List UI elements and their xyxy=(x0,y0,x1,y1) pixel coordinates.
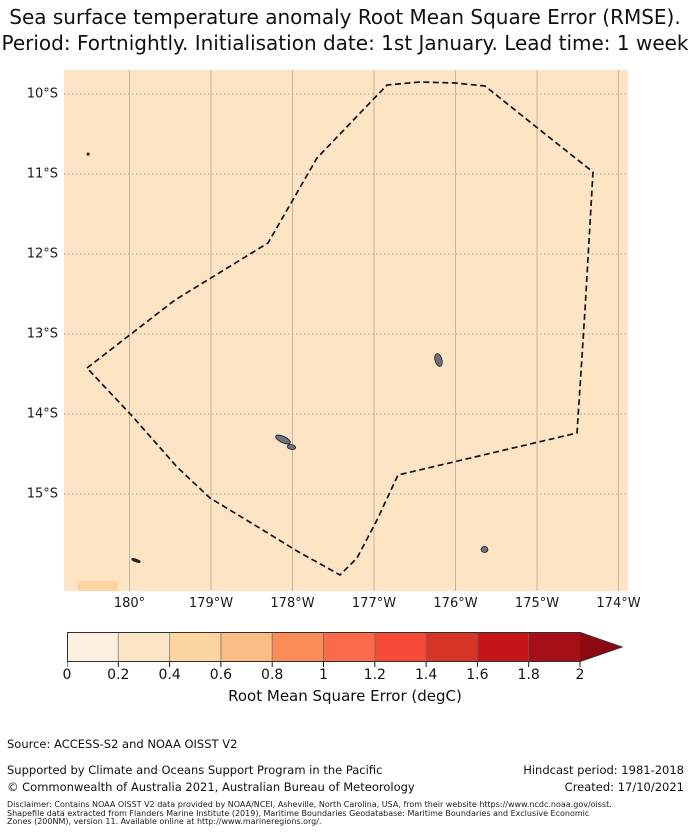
y-tick-label: 10°S xyxy=(27,87,58,102)
colorbar-tick-label: 2 xyxy=(576,667,585,683)
colorbar-label: Root Mean Square Error (degC) xyxy=(228,687,462,705)
x-tick-label: 178°W xyxy=(270,596,314,611)
island xyxy=(481,547,488,553)
colorbar-tick-label: 0.4 xyxy=(158,667,180,683)
source-text: Source: ACCESS-S2 and NOAA OISST V2 xyxy=(7,737,237,751)
x-tick-label: 174°W xyxy=(596,596,640,611)
island xyxy=(87,153,89,155)
colorbar-segment xyxy=(170,632,221,662)
colorbar-canvas xyxy=(67,632,627,670)
disclaimer-line3: Zones (200NM), version 11. Available onl… xyxy=(7,818,321,827)
map-canvas xyxy=(64,70,628,591)
x-tick-label: 175°W xyxy=(515,596,559,611)
colorbar-tick-label: 0.2 xyxy=(107,667,129,683)
colorbar-tick-label: 1.2 xyxy=(364,667,386,683)
supported-text: Supported by Climate and Oceans Support … xyxy=(7,763,382,777)
ocean-fill xyxy=(64,70,628,591)
colorbar-extend-arrow xyxy=(580,632,622,662)
y-tick-label: 11°S xyxy=(27,167,58,182)
colorbar-segment xyxy=(426,632,477,662)
colorbar-segment xyxy=(221,632,272,662)
x-tick-label: 179°W xyxy=(189,596,233,611)
hindcast-period-text: Hindcast period: 1981-2018 xyxy=(523,763,684,777)
colorbar-segment xyxy=(324,632,375,662)
figure-title-line1: Sea surface temperature anomaly Root Mea… xyxy=(9,5,680,29)
colorbar-segment xyxy=(529,632,580,662)
colorbar-tick-label: 1.8 xyxy=(518,667,540,683)
colorbar-tick-label: 1 xyxy=(319,667,328,683)
figure: Sea surface temperature anomaly Root Mea… xyxy=(0,0,690,839)
y-tick-label: 14°S xyxy=(27,407,58,422)
x-tick-label: 176°W xyxy=(433,596,477,611)
y-tick-label: 12°S xyxy=(27,247,58,262)
colorbar-segment xyxy=(375,632,426,662)
colorbar-tick-label: 0.6 xyxy=(210,667,232,683)
figure-title-line2: Period: Fortnightly. Initialisation date… xyxy=(1,31,688,55)
created-date-text: Created: 17/10/2021 xyxy=(565,780,684,794)
colorbar-segment xyxy=(118,632,169,662)
x-tick-label: 180° xyxy=(114,596,145,611)
colorbar-tick-label: 1.6 xyxy=(466,667,488,683)
copyright-text: © Commonwealth of Australia 2021, Austra… xyxy=(7,780,415,794)
colorbar-segment xyxy=(67,632,118,662)
colorbar-tick-label: 0.8 xyxy=(261,667,283,683)
x-tick-label: 177°W xyxy=(352,596,396,611)
colorbar xyxy=(67,632,627,674)
y-tick-label: 15°S xyxy=(27,487,58,502)
colorbar-tick-label: 1.4 xyxy=(415,667,437,683)
y-tick-label: 13°S xyxy=(27,327,58,342)
colorbar-segment xyxy=(477,632,528,662)
colorbar-segment xyxy=(272,632,323,662)
map-panel xyxy=(64,70,628,591)
colorbar-tick-label: 0 xyxy=(63,667,72,683)
rmse-hot-cell xyxy=(78,581,118,591)
